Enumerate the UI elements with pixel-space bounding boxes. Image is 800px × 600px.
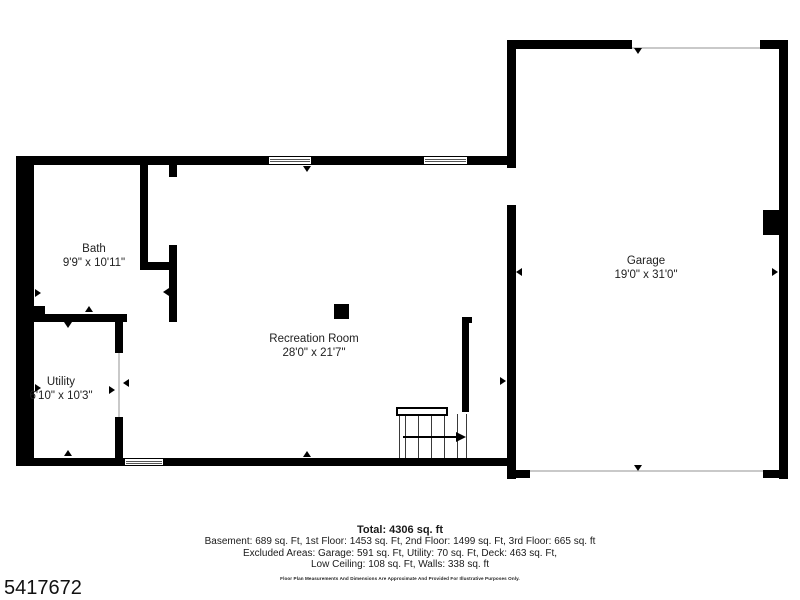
room-dimensions: 19'0" x 31'0": [614, 268, 677, 282]
stair-landing: [396, 407, 448, 416]
wall-garage-foot-right: [763, 470, 779, 478]
wall-garage-foot-left: [516, 470, 530, 478]
wall-stair-nub: [462, 317, 472, 323]
tick-marker: [123, 379, 129, 387]
wall-closet-right: [169, 245, 177, 322]
room-name: Utility: [29, 375, 92, 389]
floor-plan: Bath 9'9" x 10'11" Utility 6'10" x 10'3"…: [0, 0, 800, 600]
room-label-recreation: Recreation Room 28'0" x 21'7": [269, 332, 358, 360]
window-symbol-top-2: [423, 156, 468, 165]
wall-utility-step: [34, 306, 45, 315]
room-label-utility: Utility 6'10" x 10'3": [29, 375, 92, 403]
room-name: Bath: [63, 242, 125, 256]
support-post: [334, 304, 349, 319]
wall-closet-door-stub: [169, 156, 177, 177]
summary-total: Total: 4306 sq. ft: [0, 524, 800, 536]
tick-marker: [303, 166, 311, 172]
room-dimensions: 9'9" x 10'11": [63, 256, 125, 270]
tick-marker: [163, 288, 169, 296]
summary-low-ceiling: Low Ceiling: 108 sq. Ft, Walls: 338 sq. …: [0, 559, 800, 571]
wall-garage-left-upper: [507, 40, 516, 168]
area-summary: Total: 4306 sq. ft Basement: 689 sq. Ft,…: [0, 524, 800, 581]
wall-garage-left-lower: [507, 205, 516, 479]
utility-door-opening-line: [118, 353, 120, 417]
tick-marker: [35, 289, 41, 297]
garage-door-bottom-line: [530, 470, 763, 472]
room-label-bath: Bath 9'9" x 10'11": [63, 242, 125, 270]
tick-marker: [109, 386, 115, 394]
room-dimensions: 6'10" x 10'3": [29, 389, 92, 403]
listing-id: 5417672: [4, 577, 82, 600]
tick-marker: [772, 268, 778, 276]
wall-top-segment-b: [312, 156, 423, 165]
tick-marker: [634, 48, 642, 54]
wall-garage-top-left: [507, 40, 632, 49]
tick-marker: [85, 306, 93, 312]
tick-marker: [500, 377, 506, 385]
wall-utility-top: [16, 314, 127, 322]
wall-utility-right-upper: [115, 314, 123, 353]
garage-right-wall-block: [763, 210, 779, 235]
wall-garage-right: [779, 40, 788, 479]
tick-marker: [634, 465, 642, 471]
wall-bottom-segment-a: [16, 458, 124, 466]
window-symbol-top-1: [268, 156, 312, 165]
wall-stair-right: [462, 317, 469, 412]
wall-utility-right-lower: [115, 417, 123, 466]
tick-marker: [64, 322, 72, 328]
stair-direction-line: [403, 436, 457, 438]
garage-door-top-line: [632, 47, 760, 49]
room-dimensions: 28'0" x 21'7": [269, 346, 358, 360]
summary-floors: Basement: 689 sq. Ft, 1st Floor: 1453 sq…: [0, 536, 800, 548]
room-name: Recreation Room: [269, 332, 358, 346]
tick-marker: [303, 451, 311, 457]
room-name: Garage: [614, 254, 677, 268]
summary-disclaimer: Floor Plan Measurements And Dimensions A…: [0, 576, 800, 581]
window-symbol-bottom: [124, 458, 164, 466]
wall-left-outer: [16, 156, 34, 466]
wall-bottom-segment-b: [164, 458, 516, 466]
summary-excluded: Excluded Areas: Garage: 591 sq. Ft, Util…: [0, 548, 800, 560]
stair-direction-arrow-icon: [456, 432, 466, 442]
tick-marker: [516, 268, 522, 276]
wall-bath-right: [140, 156, 148, 268]
tick-marker: [64, 450, 72, 456]
room-label-garage: Garage 19'0" x 31'0": [614, 254, 677, 282]
